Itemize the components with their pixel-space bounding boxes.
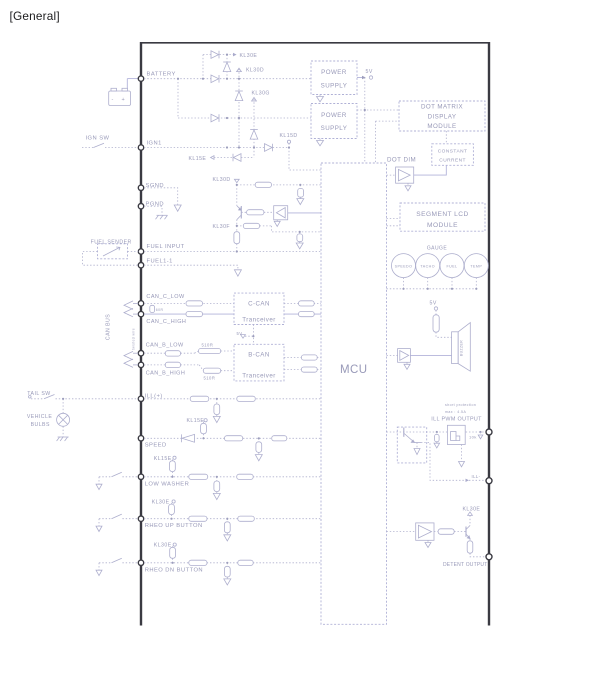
svg-text:SUPPLY: SUPPLY [321,125,348,132]
svg-text:SGND: SGND [146,183,165,189]
svg-text:CAN_C_LOW: CAN_C_LOW [146,294,185,300]
svg-text:-: - [112,97,114,103]
svg-text:ILL PWM OUTPUT: ILL PWM OUTPUT [431,417,482,423]
svg-text:VEHICLE: VEHICLE [27,414,52,420]
svg-text:5V: 5V [366,69,373,75]
svg-text:KL30D: KL30D [213,177,231,183]
svg-text:BULBS: BULBS [31,422,50,428]
svg-text:SPEED: SPEED [145,442,167,448]
svg-text:Tranceiver: Tranceiver [242,316,276,323]
svg-text:ILL-: ILL- [472,474,481,479]
svg-text:CONSTANT: CONSTANT [438,148,468,154]
svg-text:+: + [122,97,126,103]
svg-text:KL15E: KL15E [189,156,207,162]
svg-text:POWER: POWER [321,112,347,119]
svg-text:MODULE: MODULE [427,123,456,130]
svg-text:BUZZER: BUZZER [460,340,464,356]
svg-text:BATTERY: BATTERY [147,72,176,78]
svg-text:twisted wire: twisted wire [132,328,136,350]
svg-text:CURRENT: CURRENT [439,158,466,164]
svg-text:TACHO: TACHO [420,264,435,268]
svg-text:KL30G: KL30G [252,90,270,96]
svg-text:KL30E: KL30E [240,53,258,59]
svg-text:FUEL1-1: FUEL1-1 [147,259,173,265]
svg-text:KL15E: KL15E [154,456,172,462]
svg-text:SPEEDO: SPEEDO [395,264,413,268]
svg-text:60R: 60R [156,308,164,312]
svg-text:DOT DIM: DOT DIM [387,157,416,164]
svg-text:KL30D: KL30D [246,68,264,74]
svg-text:5V: 5V [430,301,437,307]
svg-text:KL30E: KL30E [463,507,481,513]
svg-text:5V: 5V [237,331,243,336]
svg-text:MODULE: MODULE [427,222,458,229]
svg-text:510R: 510R [204,376,216,381]
svg-text:CAN_C_HIGH: CAN_C_HIGH [146,319,186,325]
svg-text:RHEO DN BUTTON: RHEO DN BUTTON [145,568,203,574]
svg-text:DETENT OUTPUT: DETENT OUTPUT [443,562,487,568]
svg-text:10k: 10k [469,435,477,440]
svg-text:KL30F: KL30F [213,224,231,230]
svg-text:DISPLAY: DISPLAY [428,114,457,121]
svg-text:CAN_B_HIGH: CAN_B_HIGH [146,370,186,376]
svg-text:[General]: [General] [10,9,60,23]
svg-text:IGN1: IGN1 [147,141,162,147]
svg-text:LOW WASHER: LOW WASHER [145,481,190,487]
svg-text:FUEL: FUEL [447,264,458,268]
svg-text:TEMP: TEMP [470,264,482,268]
svg-text:B-CAN: B-CAN [248,352,270,359]
svg-text:510R: 510R [202,343,214,348]
svg-text:CAN BUS: CAN BUS [106,314,112,340]
svg-text:IGN SW: IGN SW [86,136,110,142]
svg-text:KL15D: KL15D [280,133,298,139]
svg-text:PGND: PGND [146,202,165,208]
svg-text:C-CAN: C-CAN [248,300,270,307]
svg-text:KL30E: KL30E [152,500,170,506]
svg-text:KL30E: KL30E [154,543,172,549]
svg-text:MCU: MCU [340,364,368,376]
svg-text:DOT MATRIX: DOT MATRIX [421,104,463,111]
svg-text:SUPPLY: SUPPLY [321,83,348,90]
svg-text:FUEL SENDER: FUEL SENDER [91,240,132,246]
svg-text:KL15E: KL15E [187,418,205,424]
svg-text:SEGMENT LCD: SEGMENT LCD [416,211,468,218]
svg-text:max : 4.5A: max : 4.5A [445,410,466,414]
svg-text:GAUGE: GAUGE [427,246,448,252]
svg-text:FUEL INPUT: FUEL INPUT [147,244,185,250]
svg-text:RHEO UP BUTTON: RHEO UP BUTTON [145,523,203,529]
svg-text:CAN_B_LOW: CAN_B_LOW [146,342,184,348]
svg-text:Tranceiver: Tranceiver [242,373,276,380]
svg-text:POWER: POWER [321,69,347,76]
svg-text:short protection: short protection [445,403,476,407]
